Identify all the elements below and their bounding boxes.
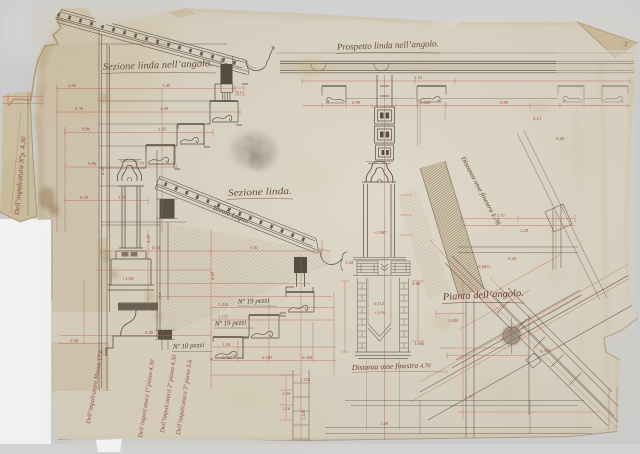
svg-text:0.13: 0.13 xyxy=(533,116,542,121)
svg-text:0.80: 0.80 xyxy=(82,127,91,132)
svg-text:1.48: 1.48 xyxy=(380,421,389,426)
svg-text:1.44: 1.44 xyxy=(345,260,354,265)
svg-text:1.71: 1.71 xyxy=(465,394,473,399)
svg-text:0.112: 0.112 xyxy=(374,301,385,306)
svg-text:1.41: 1.41 xyxy=(250,245,258,250)
svg-text:0.44: 0.44 xyxy=(152,245,161,250)
svg-text:Sezione linda.: Sezione linda. xyxy=(228,186,292,199)
svg-text:1.125: 1.125 xyxy=(300,377,311,382)
svg-text:0.4411: 0.4411 xyxy=(478,264,490,269)
svg-text:1.040: 1.040 xyxy=(414,341,425,346)
svg-text:1.73: 1.73 xyxy=(136,161,145,166)
svg-text:0.98: 0.98 xyxy=(500,100,509,105)
svg-text:1.45: 1.45 xyxy=(162,83,171,88)
svg-text:1.04: 1.04 xyxy=(282,391,291,396)
svg-text:0.304: 0.304 xyxy=(302,355,313,360)
svg-text:Nº 19 pezzi: Nº 19 pezzi xyxy=(214,318,247,328)
svg-text:1.16: 1.16 xyxy=(222,342,231,347)
svg-text:0.58: 0.58 xyxy=(70,338,79,343)
svg-text:1.40: 1.40 xyxy=(160,106,169,111)
svg-text:4.30: 4.30 xyxy=(100,166,105,175)
svg-text:0.30: 0.30 xyxy=(75,106,84,111)
svg-text:1.10: 1.10 xyxy=(414,75,423,80)
svg-text:0.80: 0.80 xyxy=(68,83,77,88)
svg-text:4.30: 4.30 xyxy=(146,234,151,243)
svg-text:0.445: 0.445 xyxy=(420,100,431,105)
svg-text:+1.987: +1.987 xyxy=(373,230,387,235)
svg-text:1.28: 1.28 xyxy=(520,228,529,233)
svg-text:1.71: 1.71 xyxy=(497,213,505,218)
svg-text:1.43: 1.43 xyxy=(158,127,167,132)
svg-text:0.44: 0.44 xyxy=(412,281,421,286)
svg-text:1.353: 1.353 xyxy=(540,348,551,353)
svg-text:0.98: 0.98 xyxy=(352,100,361,105)
svg-text:+1.90: +1.90 xyxy=(374,310,386,315)
svg-text:0.13: 0.13 xyxy=(236,90,245,95)
svg-text:0.30: 0.30 xyxy=(80,195,89,200)
svg-text:0.723: 0.723 xyxy=(222,355,233,360)
svg-text:+1.94: +1.94 xyxy=(122,276,134,281)
svg-text:1.414: 1.414 xyxy=(218,302,229,307)
svg-text:1.75: 1.75 xyxy=(118,195,127,200)
svg-text:0.40: 0.40 xyxy=(145,330,154,335)
svg-text:1.16: 1.16 xyxy=(282,406,291,411)
svg-text:0.86: 0.86 xyxy=(88,161,97,166)
svg-text:1.125: 1.125 xyxy=(301,409,306,420)
svg-text:0.44: 0.44 xyxy=(556,136,565,141)
svg-text:0.44: 0.44 xyxy=(508,256,517,261)
svg-text:Nº 19 pezzi: Nº 19 pezzi xyxy=(237,296,270,306)
svg-text:0.583: 0.583 xyxy=(262,355,273,360)
svg-text:4.30: 4.30 xyxy=(210,271,215,280)
svg-text:1.171: 1.171 xyxy=(218,315,228,320)
